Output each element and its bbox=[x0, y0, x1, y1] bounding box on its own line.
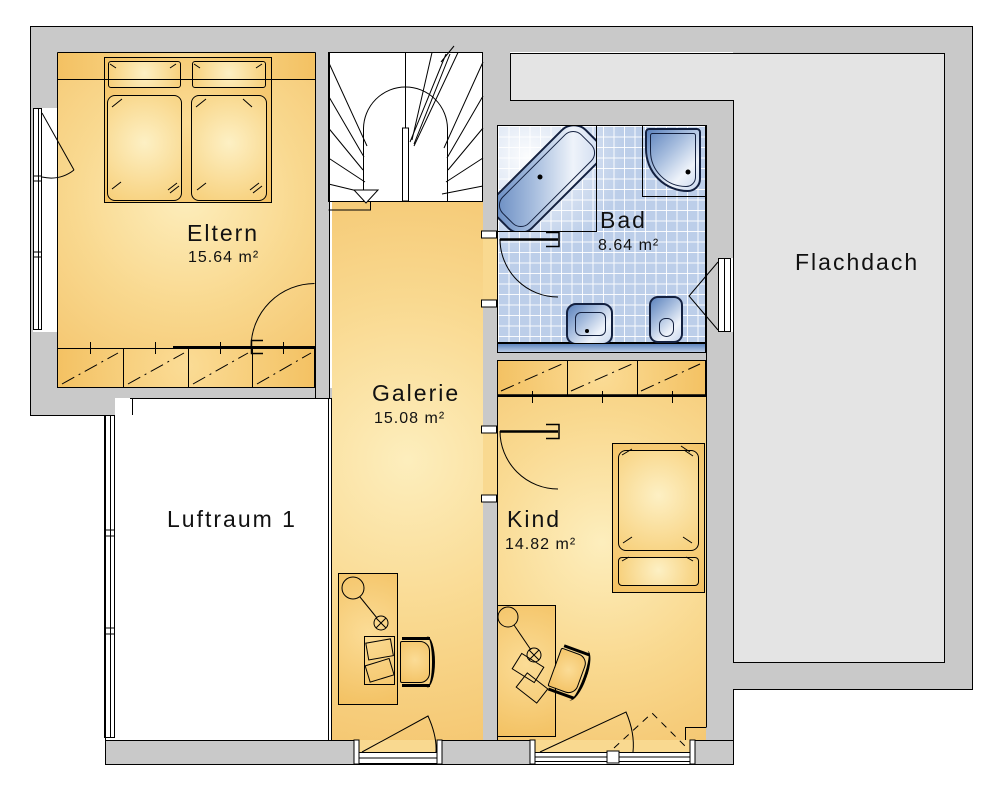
corner-bathtub-icon bbox=[497, 125, 597, 232]
kind-window-niche bbox=[535, 740, 690, 753]
galerie-desk-chair bbox=[400, 636, 438, 688]
eltern-area-label: 15.64 m² bbox=[188, 249, 259, 267]
flachdach-label: Flachdach bbox=[795, 249, 919, 276]
wall-stair-bath bbox=[483, 26, 510, 126]
kind-bed-foot bbox=[618, 557, 699, 586]
shower-zone bbox=[642, 125, 706, 197]
floor-plan: Eltern 15.64 m² Bad 8.64 m² Galerie 15.0… bbox=[0, 0, 1000, 797]
kind-door-threshold bbox=[483, 433, 497, 495]
chair-back-arc bbox=[418, 636, 435, 688]
kind-area-label: 14.82 m² bbox=[505, 536, 576, 554]
bad-shelf-strip bbox=[497, 343, 706, 353]
luftraum-label: Luftraum 1 bbox=[167, 506, 297, 533]
wall-bottom-3 bbox=[690, 740, 733, 765]
luftraum-void bbox=[115, 398, 332, 740]
bad-window-niche bbox=[718, 258, 733, 332]
bed-mattress-right bbox=[191, 95, 267, 201]
bed-pillow-left bbox=[108, 61, 181, 88]
eltern-room-label: Eltern bbox=[187, 220, 259, 247]
wall-galerie-kind bbox=[483, 495, 497, 740]
wall-left-upper bbox=[30, 26, 57, 108]
eltern-window-niche bbox=[41, 108, 57, 330]
wall-galerie-bath-2 bbox=[483, 300, 497, 433]
washbasin-icon bbox=[566, 303, 613, 345]
bathtub-inner-line bbox=[497, 126, 597, 232]
flachdach-panel-right bbox=[733, 53, 945, 663]
bed-pillow-right bbox=[192, 61, 266, 88]
washbasin-inner bbox=[575, 312, 606, 336]
galerie-window-niche bbox=[359, 740, 437, 753]
wall-bad-kind bbox=[497, 353, 706, 360]
galerie-room-label: Galerie bbox=[372, 380, 460, 407]
galerie-desk bbox=[338, 573, 398, 705]
kind-wardrobe bbox=[497, 360, 706, 397]
wall-bath-top bbox=[510, 100, 733, 126]
wall-galerie-bath-1 bbox=[483, 126, 497, 238]
bathtub-zone bbox=[497, 125, 597, 232]
kind-desk bbox=[497, 605, 556, 737]
wall-bottom-1 bbox=[105, 740, 359, 765]
wall-left-sliver bbox=[30, 108, 33, 332]
wall-under-wardrobe bbox=[30, 388, 332, 398]
shower-inner-line bbox=[650, 133, 696, 187]
toilet-bowl bbox=[659, 318, 674, 337]
stair-well bbox=[328, 52, 483, 202]
bad-room-label: Bad bbox=[600, 207, 647, 234]
kind-bed-mattress bbox=[618, 450, 699, 551]
wall-kind-right bbox=[706, 125, 733, 765]
wall-mid-vertical bbox=[315, 52, 329, 398]
bad-area-label: 8.64 m² bbox=[598, 237, 659, 255]
corner-shower-icon bbox=[645, 128, 701, 192]
toilet-icon bbox=[649, 296, 683, 343]
bed-mattress-left bbox=[107, 95, 182, 201]
eltern-wardrobe bbox=[57, 348, 315, 388]
bad-door-threshold bbox=[483, 238, 497, 300]
galerie-area-label: 15.08 m² bbox=[374, 410, 445, 428]
kind-room-label: Kind bbox=[507, 506, 561, 533]
wall-bottom-2 bbox=[437, 740, 535, 765]
